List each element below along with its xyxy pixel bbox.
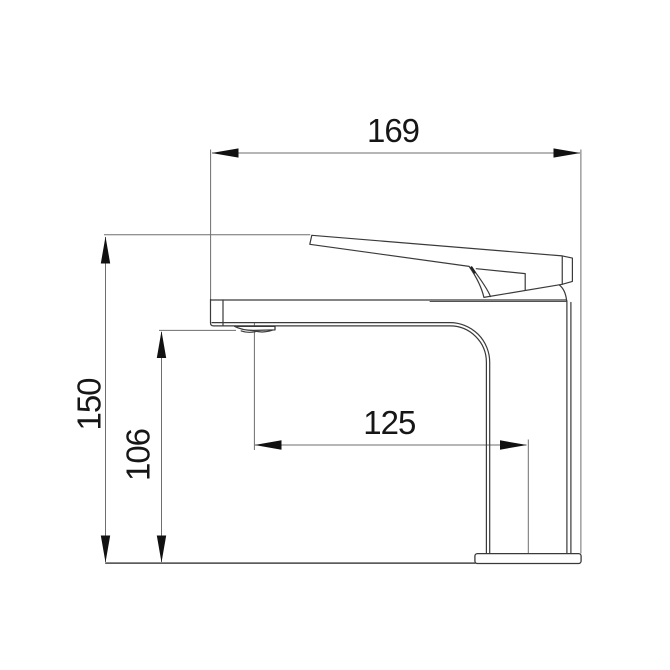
svg-text:150: 150: [71, 378, 108, 431]
svg-text:106: 106: [120, 429, 157, 481]
svg-text:169: 169: [367, 112, 419, 149]
svg-text:125: 125: [363, 404, 415, 441]
